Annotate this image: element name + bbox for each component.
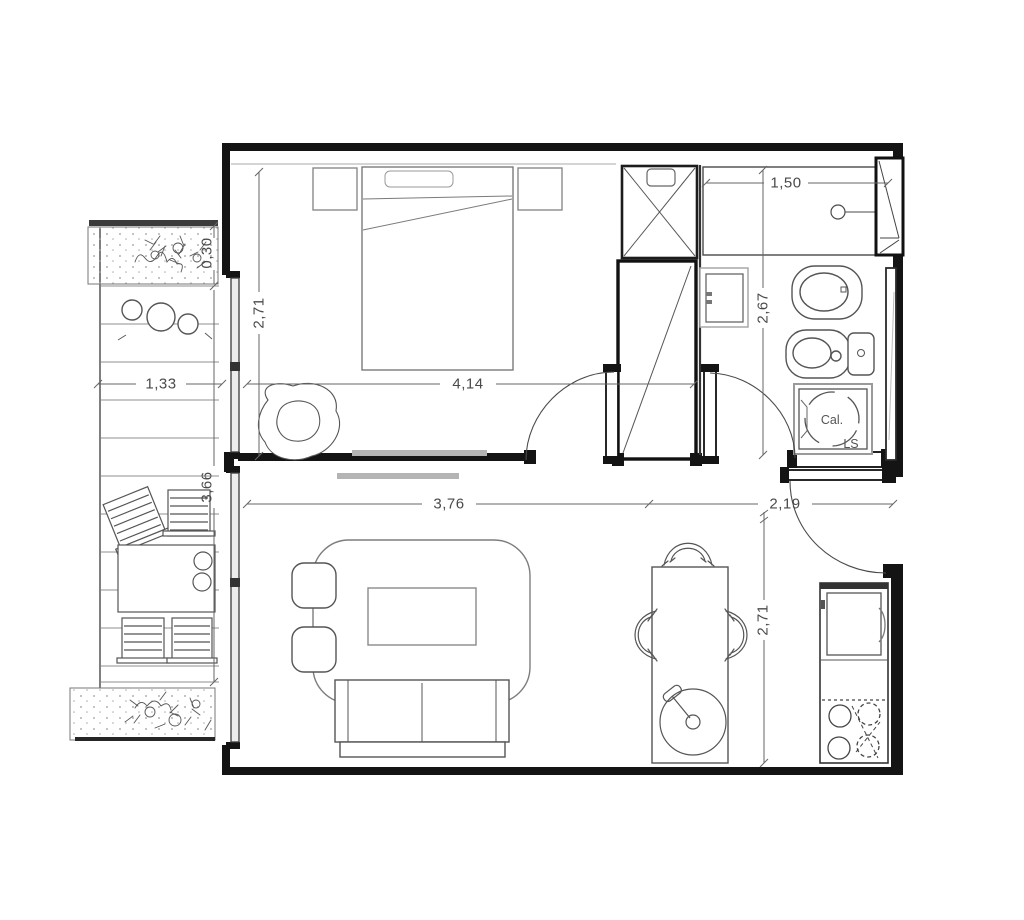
dim-balcony-width: 1,33 <box>145 376 176 393</box>
dim-balcony-length: 3,66 <box>199 471 216 502</box>
closet <box>612 261 702 466</box>
dresser-shelf <box>352 450 487 456</box>
bedroom <box>258 167 562 460</box>
wall-right-lower <box>891 567 903 775</box>
window-living <box>226 466 240 749</box>
bed <box>362 167 513 370</box>
plate <box>194 552 212 570</box>
vanity-sink <box>700 268 748 327</box>
mirror-panel <box>886 268 896 460</box>
toilet <box>792 266 862 319</box>
floor-plan-drawing <box>0 0 1024 920</box>
nightstand-right <box>518 168 562 210</box>
nightstand-left <box>313 168 357 210</box>
pouf-1 <box>292 563 336 608</box>
window-bedroom <box>226 271 240 459</box>
outdoor-chair-3 <box>117 618 169 663</box>
dim-shower-width: 1,50 <box>770 175 801 192</box>
outdoor-chair-1 <box>98 485 171 554</box>
dim-entry-width: 2,19 <box>769 496 800 513</box>
dim-planter-depth: 0,30 <box>199 237 216 268</box>
planter-bottom <box>70 688 215 741</box>
outdoor-furniture <box>98 485 217 663</box>
sofa <box>335 680 509 757</box>
label-water-heater: Cal. <box>821 413 843 427</box>
balcony <box>70 220 219 741</box>
tv-console <box>337 473 459 479</box>
dining-table <box>652 567 728 763</box>
floor-plan: 4,14 2,71 1,33 0,30 3,66 1,50 2,67 3,76 … <box>0 0 1024 920</box>
wardrobe <box>622 166 697 258</box>
shower-drain <box>831 205 845 219</box>
bathroom-door <box>701 364 795 464</box>
kitchen-sink <box>820 593 888 660</box>
living-room <box>292 473 530 757</box>
outdoor-chair-4 <box>167 618 217 663</box>
label-laundry-sink: LS <box>843 437 858 451</box>
dim-bedroom-width: 4,14 <box>452 376 483 393</box>
coffee-table <box>368 588 476 645</box>
wall-bottom <box>222 767 903 775</box>
dining <box>635 543 747 763</box>
dim-living-width: 3,76 <box>433 496 464 513</box>
plate <box>193 573 211 591</box>
wall-top <box>222 143 903 151</box>
pouf-2 <box>292 627 336 672</box>
kitchen <box>820 583 888 763</box>
bedroom-door <box>526 364 621 464</box>
dim-dining-depth: 2,71 <box>755 604 772 635</box>
bidet <box>786 330 874 378</box>
armchair <box>258 383 339 459</box>
plant-pots <box>118 300 212 340</box>
dim-bedroom-depth: 2,71 <box>251 297 268 328</box>
bathroom <box>700 158 903 460</box>
duct-shaft <box>876 158 903 255</box>
storage <box>612 166 702 466</box>
entry-door <box>780 466 896 573</box>
windows <box>226 271 240 749</box>
wall-left-upper <box>222 143 230 275</box>
wall-left-lower <box>222 745 230 775</box>
dim-bathroom-depth: 2,67 <box>755 292 772 323</box>
